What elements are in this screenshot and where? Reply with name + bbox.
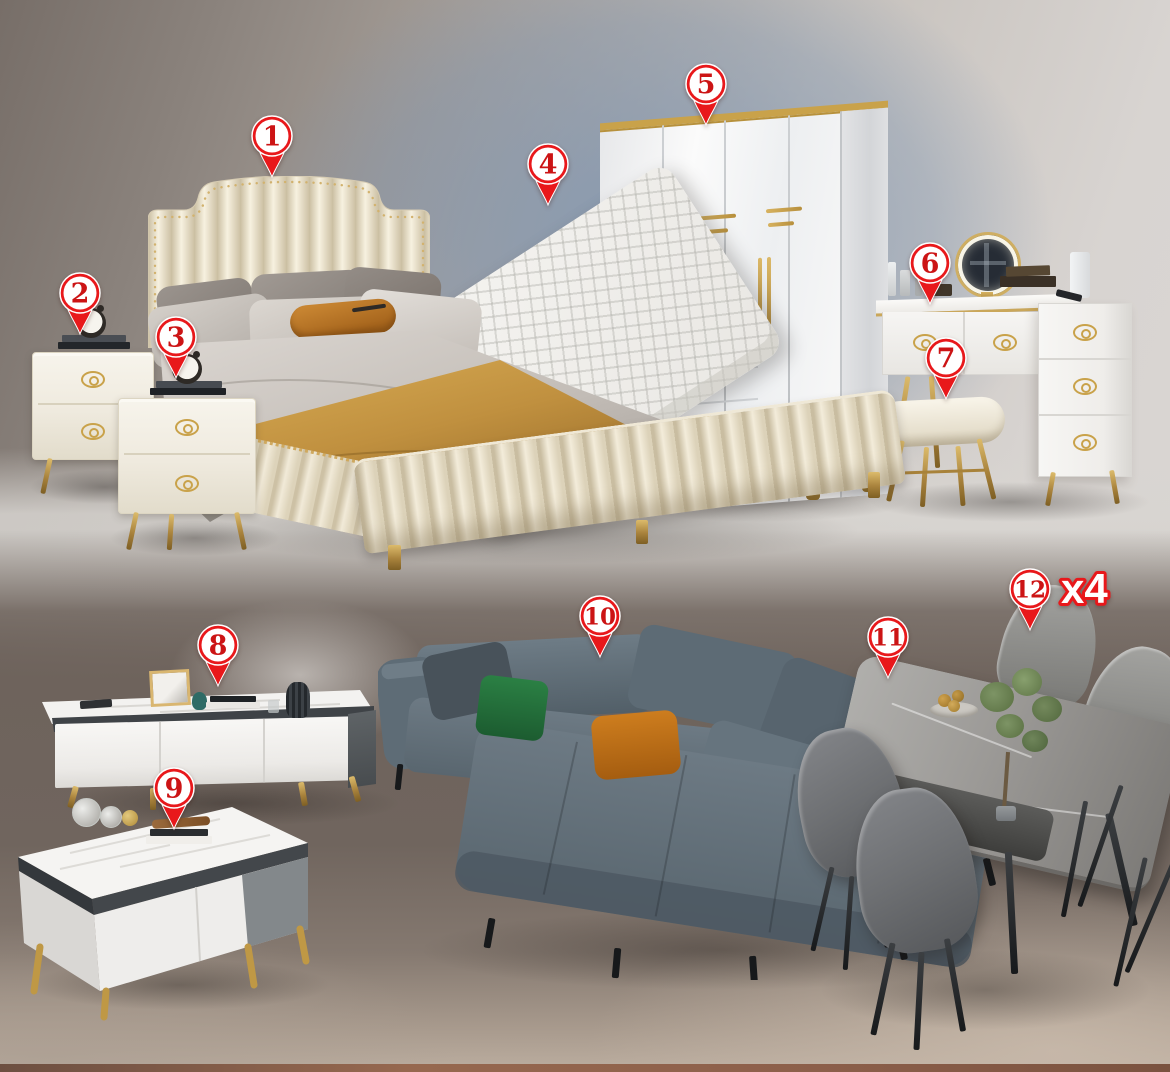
pin-number: 8 — [209, 631, 228, 662]
item-pin-tv-stand: 8 — [194, 622, 242, 688]
pin-number: 12 — [1014, 576, 1046, 603]
item-pin-coffee-table: 9 — [150, 765, 198, 831]
item-pin-nightstand-right: 3 — [152, 314, 200, 380]
pin-number: 3 — [167, 323, 186, 354]
item-pin-dining-table: 11 — [864, 614, 912, 680]
pin-number: 5 — [697, 70, 716, 101]
item-pin-dressing-table: 6 — [906, 240, 954, 306]
item-pin-bed: 1 — [248, 113, 296, 179]
pin-number: 2 — [71, 279, 90, 310]
pin-number: 6 — [921, 249, 940, 280]
item-pin-wardrobe: 5 — [682, 61, 730, 127]
pin-number: 11 — [872, 624, 904, 651]
furniture-catalog-image: 123456789101112x4 — [0, 0, 1170, 1072]
pin-number: 1 — [263, 122, 282, 153]
pin-number: 4 — [539, 150, 558, 181]
svg-text:x4: x4 — [1061, 565, 1108, 612]
pin-number: 9 — [165, 774, 184, 805]
item-pin-mattress: 4 — [524, 141, 572, 207]
item-pin-sofa: 10 — [576, 593, 624, 659]
pin-number: 10 — [584, 603, 616, 630]
pin-layer: 123456789101112x4 — [0, 0, 1170, 1072]
item-pin-nightstand-left: 2 — [56, 270, 104, 336]
multiplier-label: x4 — [1055, 561, 1139, 617]
pin-number: 7 — [937, 344, 956, 375]
item-pin-stool: 7 — [922, 335, 970, 401]
item-pin-dining-chair: 12x4 — [1006, 566, 1054, 632]
